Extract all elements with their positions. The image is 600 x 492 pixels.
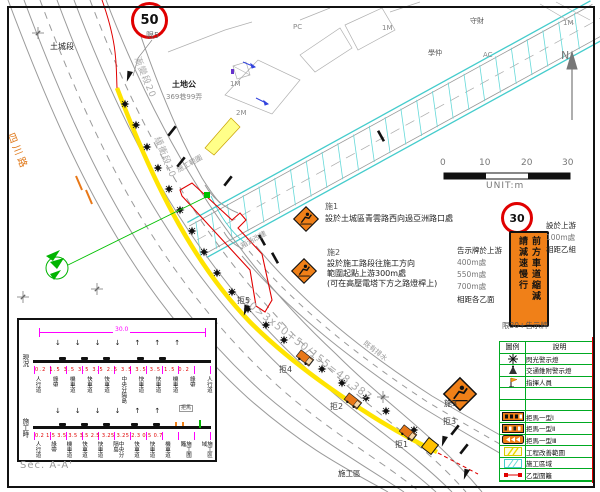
traffic-control-plan: 50 30 前方車道縮減 請減速慢行 限30+告示牌 施1 設於土城區青雲路西向…	[0, 0, 600, 492]
drawing-border	[7, 6, 595, 488]
